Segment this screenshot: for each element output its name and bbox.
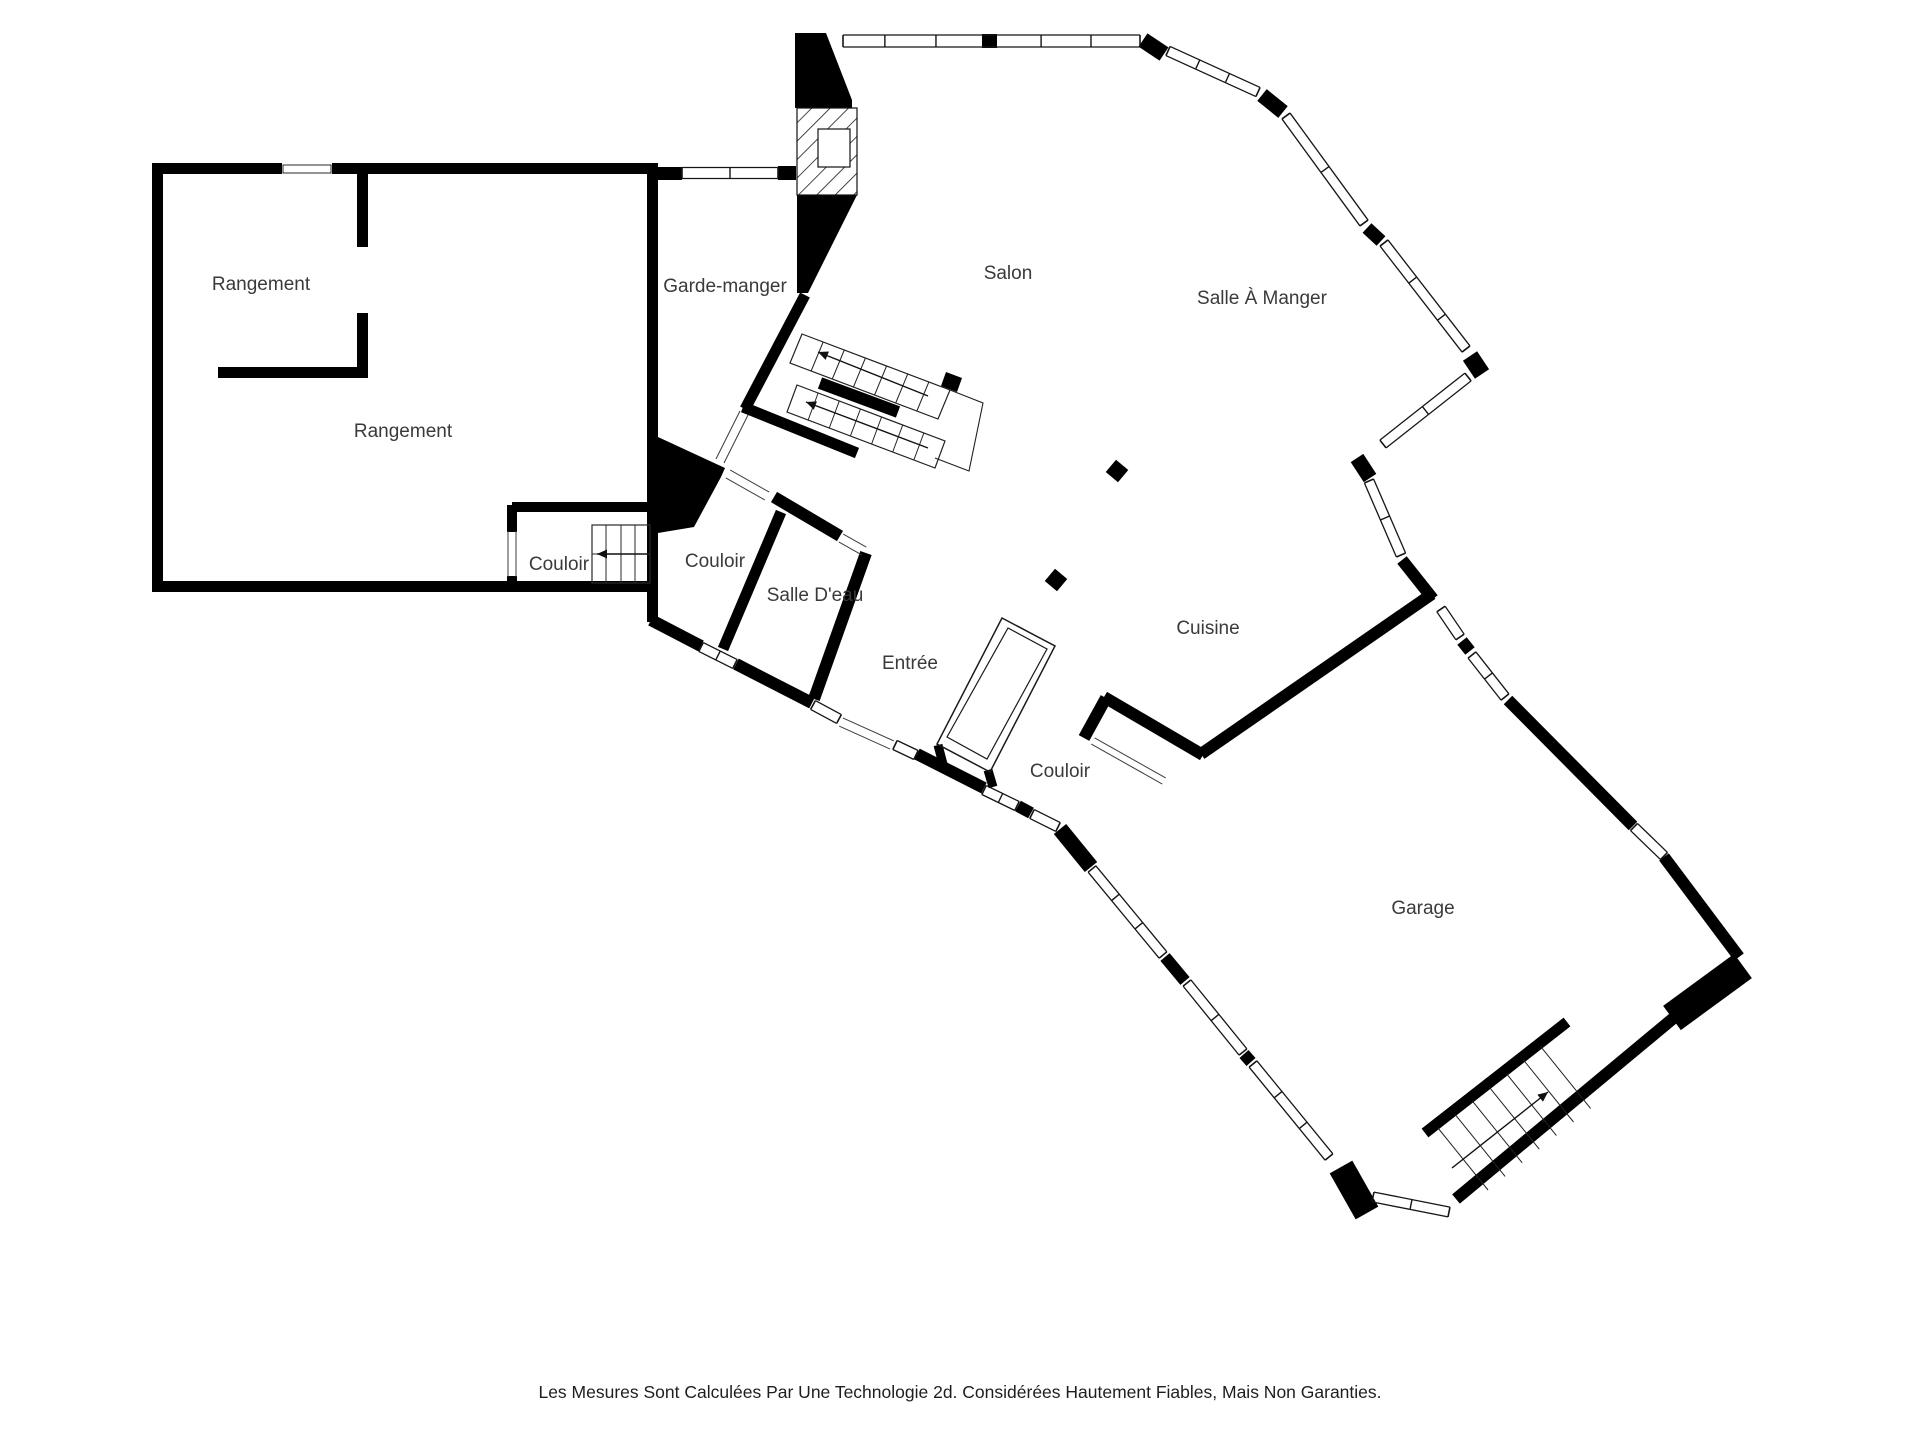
floor-plan-page: Rangement Rangement Couloir Garde-manger… — [0, 0, 1920, 1440]
plan-background — [0, 0, 1920, 1440]
wall — [982, 34, 997, 48]
wall — [152, 581, 658, 592]
wall — [507, 576, 517, 592]
wall — [512, 502, 658, 512]
fireplace-firebox — [818, 129, 850, 167]
wall — [357, 313, 368, 375]
wall — [647, 163, 658, 437]
room-label-couloir-garage: Couloir — [1030, 761, 1091, 782]
room-label-salon: Salon — [984, 263, 1033, 284]
wall — [218, 367, 368, 378]
fireplace-group — [797, 108, 857, 195]
room-label-couloir-hall: Couloir — [685, 551, 746, 572]
room-label-salle-deau: Salle D'eau — [767, 585, 864, 606]
wall — [1462, 641, 1470, 651]
room-label-salle-a-manger: Salle À Manger — [1197, 288, 1328, 309]
room-label-garde-manger: Garde-manger — [663, 276, 787, 297]
room-label-couloir-storage: Couloir — [529, 554, 590, 575]
measurement-disclaimer: Les Mesures Sont Calculées Par Une Techn… — [538, 1382, 1381, 1402]
wall — [778, 166, 796, 180]
wall — [658, 167, 682, 180]
room-label-rangement-upper: Rangement — [212, 274, 311, 295]
wall — [152, 163, 163, 592]
wall — [1018, 806, 1031, 813]
wall — [1244, 1054, 1251, 1062]
wall — [938, 745, 944, 768]
room-label-rangement-lower: Rangement — [354, 421, 453, 442]
wall — [332, 163, 658, 174]
wall — [152, 163, 282, 174]
wall — [1470, 356, 1482, 374]
room-label-cuisine: Cuisine — [1176, 618, 1239, 639]
door-opening — [283, 165, 331, 173]
floor-plan-svg: Rangement Rangement Couloir Garde-manger… — [0, 0, 1920, 1440]
wall — [357, 174, 368, 247]
room-label-garage: Garage — [1391, 898, 1454, 919]
wall — [647, 532, 658, 622]
room-label-entree: Entrée — [882, 653, 938, 674]
